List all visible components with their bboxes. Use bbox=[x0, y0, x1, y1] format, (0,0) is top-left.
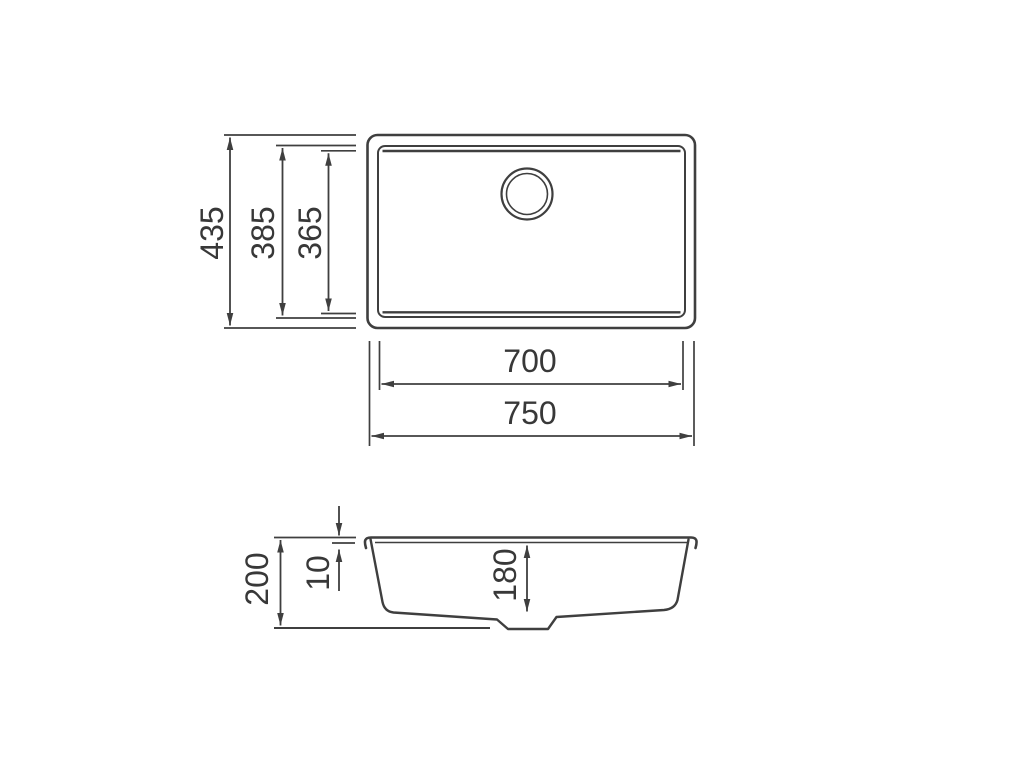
drain-inner-circle bbox=[507, 174, 548, 215]
dim-750-label: 750 bbox=[503, 395, 556, 431]
top-view-outer-outline bbox=[368, 135, 696, 328]
dim-435-label: 435 bbox=[194, 206, 230, 259]
drawing-page: 435 385 365 700 750 bbox=[0, 0, 1024, 768]
drain-outer-circle bbox=[502, 169, 553, 220]
top-view-vertical-dimensions bbox=[224, 135, 356, 328]
top-view bbox=[368, 135, 696, 328]
section-view bbox=[365, 538, 697, 630]
dim-365-label: 365 bbox=[292, 206, 328, 259]
dim-180-label: 180 bbox=[487, 548, 523, 601]
dim-385-label: 385 bbox=[245, 206, 281, 259]
dim-700-label: 700 bbox=[503, 343, 556, 379]
dim-200-label: 200 bbox=[239, 552, 275, 605]
technical-drawing-canvas: 435 385 365 700 750 bbox=[0, 0, 1024, 768]
section-bowl-profile bbox=[371, 539, 689, 629]
top-view-bowl-outline bbox=[378, 146, 685, 317]
dim-10-label: 10 bbox=[300, 555, 336, 591]
